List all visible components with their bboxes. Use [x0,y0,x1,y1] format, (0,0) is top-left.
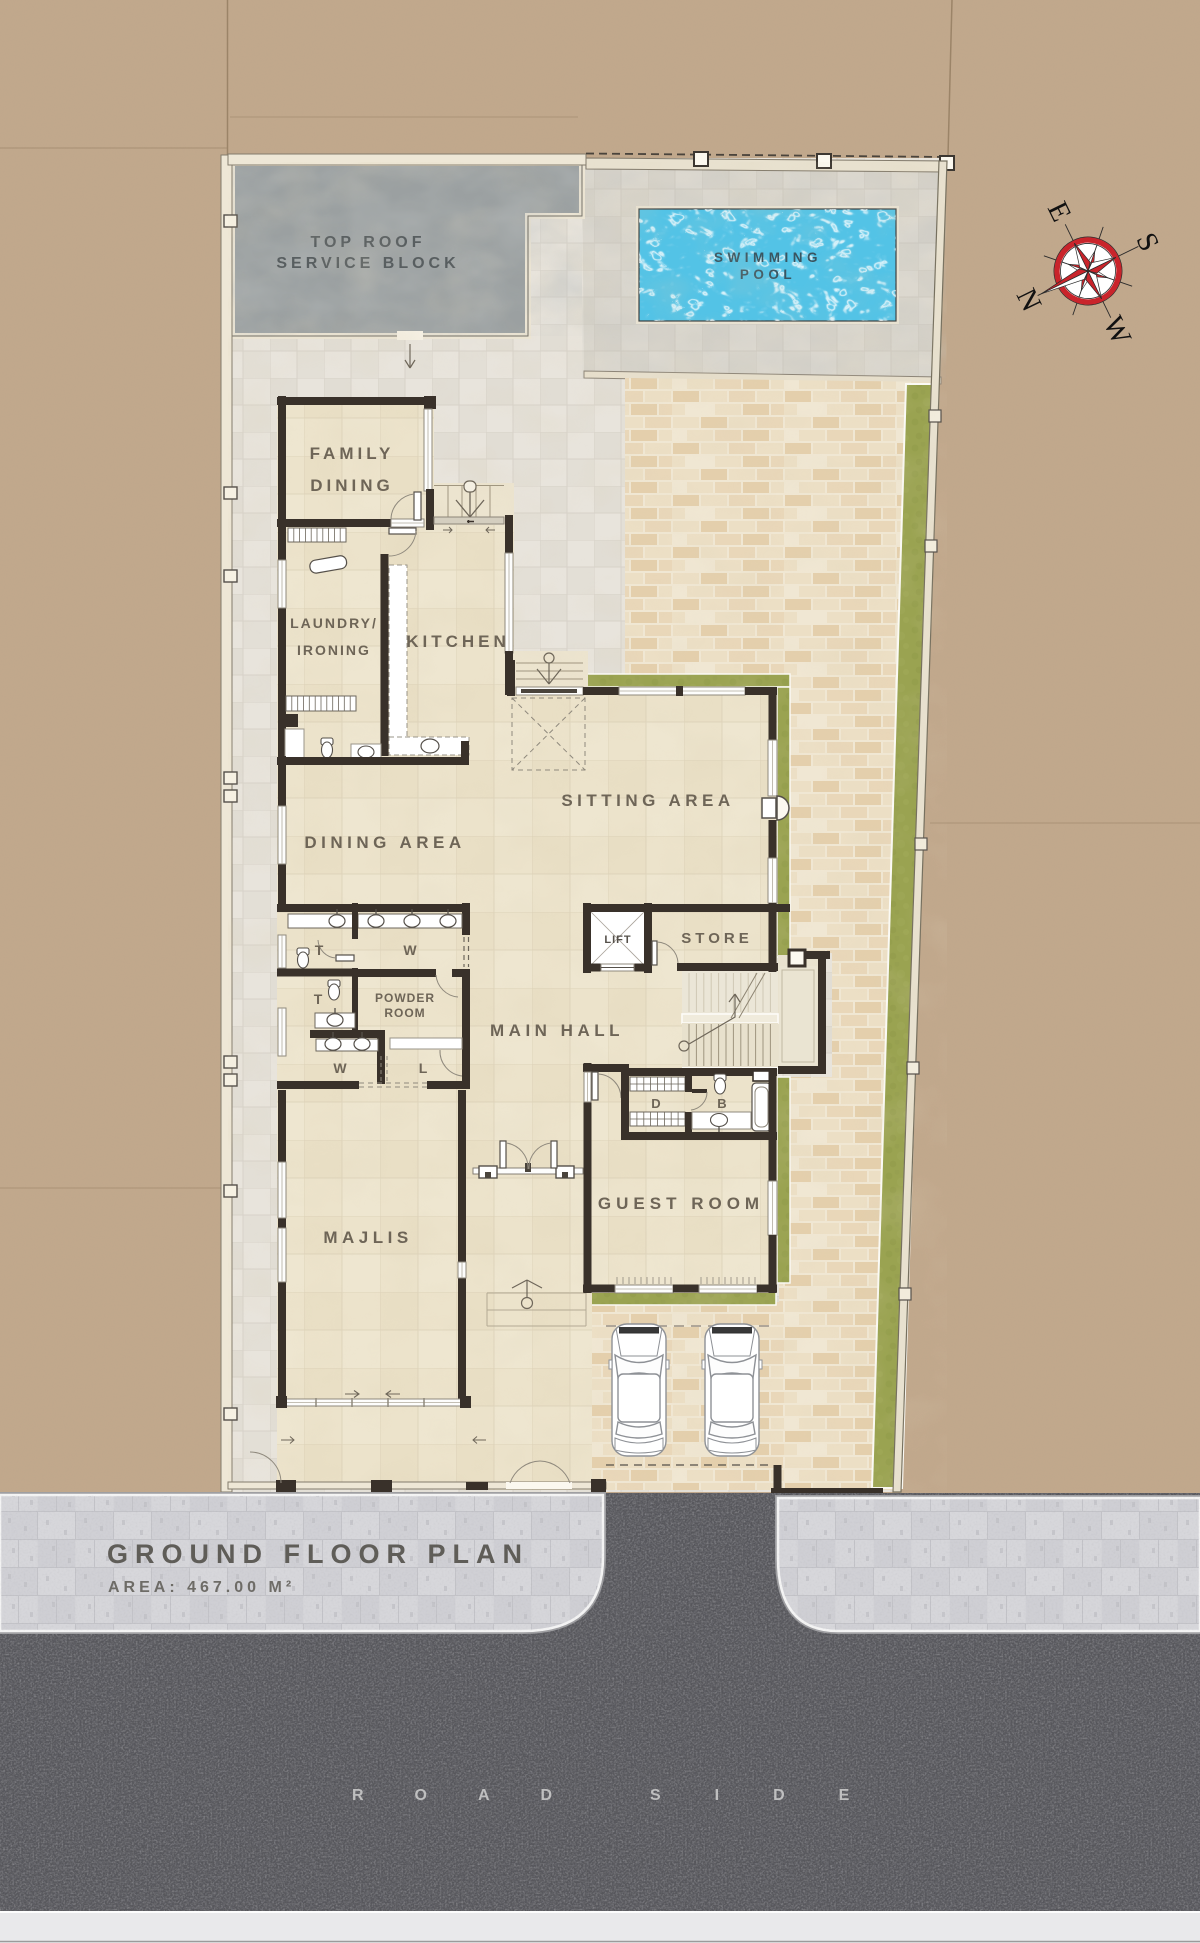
svg-text:MAJLIS: MAJLIS [323,1228,412,1247]
svg-text:GUEST ROOM: GUEST ROOM [598,1194,764,1213]
svg-text:SITTING AREA: SITTING AREA [561,791,734,810]
svg-text:AREA: 467.00 M²: AREA: 467.00 M² [108,1579,295,1596]
svg-text:FAMILY: FAMILY [310,444,395,463]
svg-text:B: B [717,1096,726,1111]
svg-text:IRONING: IRONING [297,642,371,658]
svg-text:W: W [333,1060,347,1076]
svg-text:DINING AREA: DINING AREA [304,833,465,852]
svg-text:KITCHEN: KITCHEN [406,632,510,651]
svg-text:STORE: STORE [681,930,752,947]
svg-text:W: W [403,942,417,958]
svg-text:DINING: DINING [310,476,394,495]
svg-text:L: L [419,1060,428,1076]
svg-text:MAIN HALL: MAIN HALL [490,1021,624,1040]
svg-text:ROAD: ROAD [352,1787,603,1804]
svg-text:ROOM: ROOM [384,1006,425,1020]
svg-text:SIDE: SIDE [650,1787,903,1804]
svg-text:T: T [314,991,323,1007]
svg-text:LAUNDRY/: LAUNDRY/ [290,615,378,631]
svg-text:D: D [651,1096,660,1111]
svg-text:T: T [315,942,324,958]
svg-text:LIFT: LIFT [604,934,631,946]
svg-text:POWDER: POWDER [375,991,435,1005]
svg-text:GROUND FLOOR PLAN: GROUND FLOOR PLAN [107,1539,529,1569]
